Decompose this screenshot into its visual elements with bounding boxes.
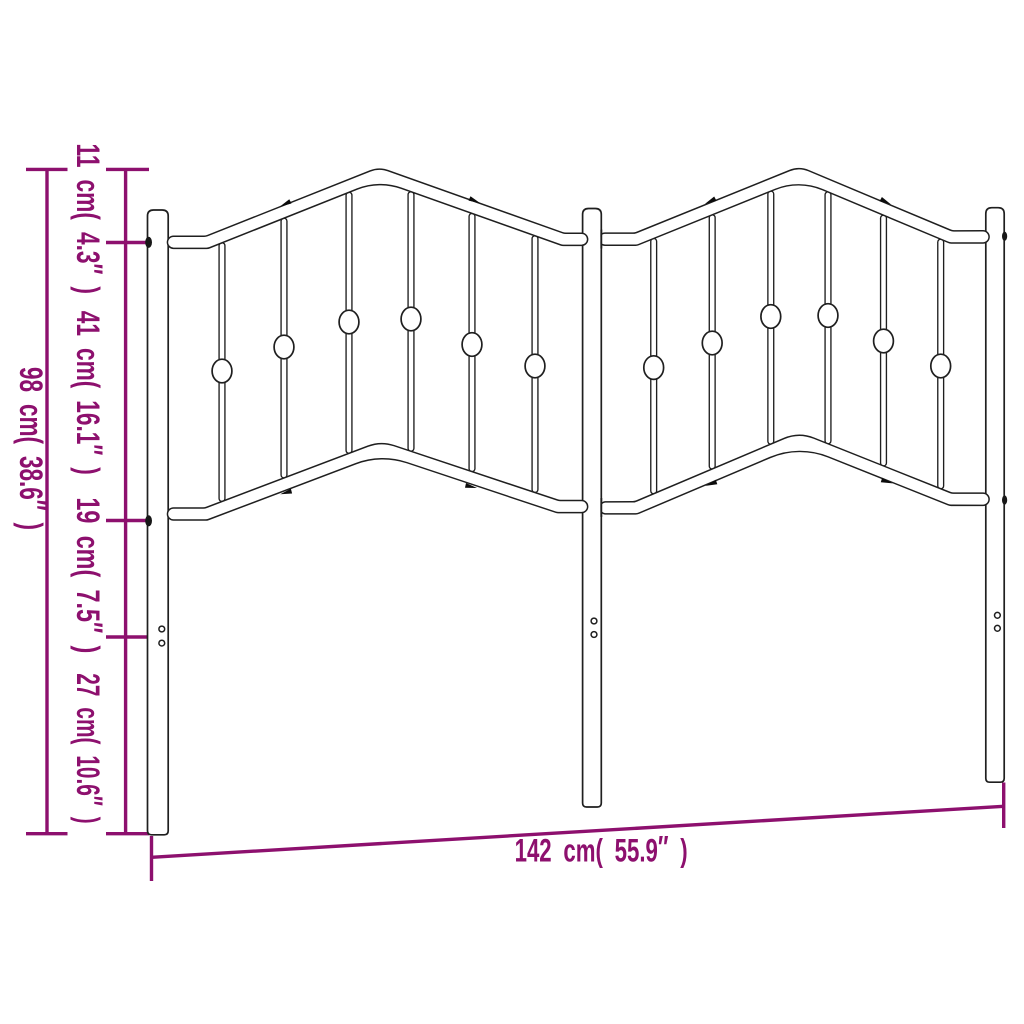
- svg-text:98 cm( 38.6″ ): 98 cm( 38.6″ ): [13, 367, 52, 530]
- svg-text:41 cm( 16.1″ ): 41 cm( 16.1″ ): [70, 311, 109, 475]
- svg-text:27 cm( 10.6″ ): 27 cm( 10.6″ ): [70, 673, 109, 823]
- svg-text:142 cm( 55.9″ ): 142 cm( 55.9″ ): [515, 830, 688, 869]
- svg-text:19 cm( 7.5″ ): 19 cm( 7.5″ ): [70, 497, 109, 653]
- svg-text:11 cm( 4.3″ ): 11 cm( 4.3″ ): [70, 144, 109, 295]
